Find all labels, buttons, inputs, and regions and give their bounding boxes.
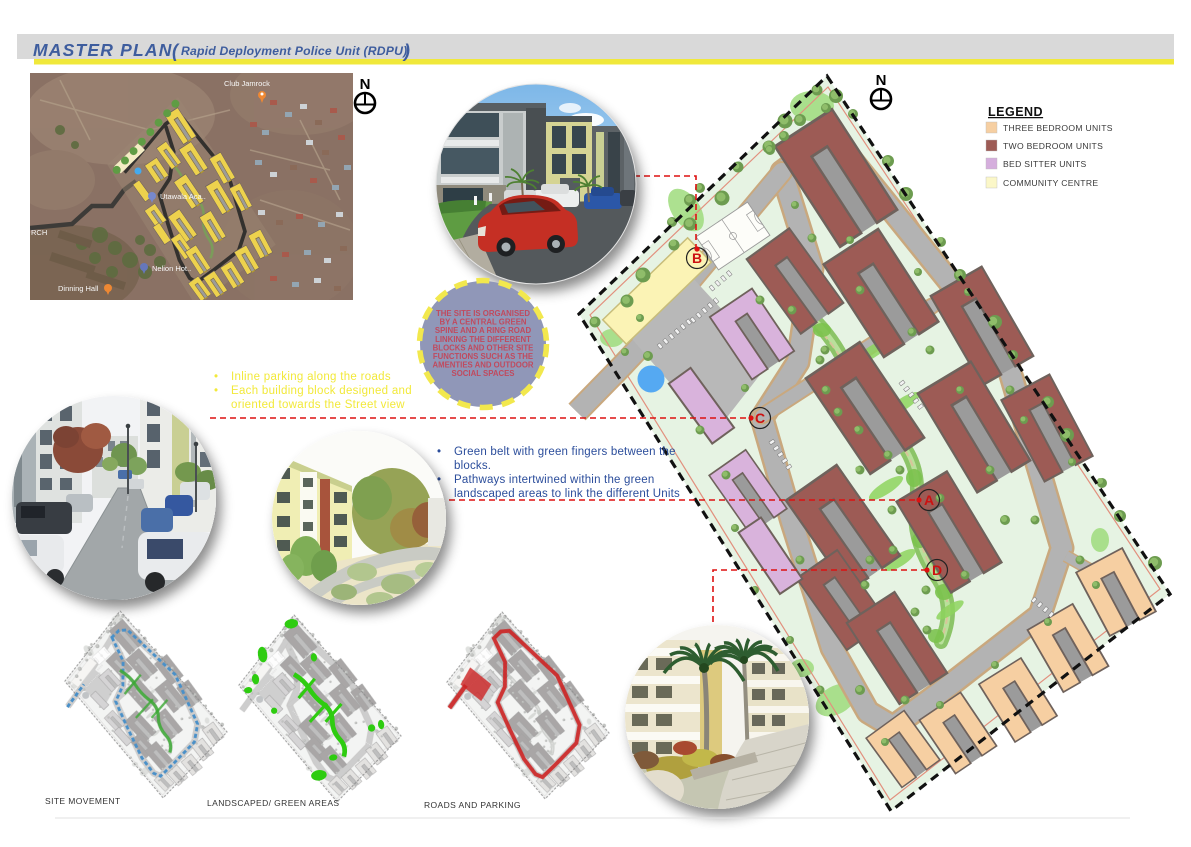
svg-text:Pathways intertwined within th: Pathways intertwined within the green bbox=[454, 474, 654, 486]
svg-text:COMMUNITY CENTRE: COMMUNITY CENTRE bbox=[1003, 178, 1098, 188]
svg-text:TWO BEDROOM UNITS: TWO BEDROOM UNITS bbox=[1003, 141, 1103, 151]
svg-text:Nelion Hot..: Nelion Hot.. bbox=[152, 264, 191, 273]
svg-text:N: N bbox=[876, 72, 887, 89]
svg-text:C: C bbox=[755, 410, 765, 426]
svg-text:Rapid Deployment Police Unit (: Rapid Deployment Police Unit (RDPU) bbox=[181, 44, 407, 58]
svg-text:MASTER PLAN: MASTER PLAN bbox=[33, 40, 173, 60]
svg-text:•: • bbox=[214, 371, 218, 383]
svg-text:Utawala Aca..: Utawala Aca.. bbox=[160, 192, 206, 201]
svg-text:Inline parking along the roads: Inline parking along the roads bbox=[231, 371, 391, 383]
svg-text:Club Jamrock: Club Jamrock bbox=[224, 79, 270, 88]
svg-text:BED SITTER UNITS: BED SITTER UNITS bbox=[1003, 159, 1087, 169]
svg-text:THREE BEDROOM UNITS: THREE BEDROOM UNITS bbox=[1003, 123, 1113, 133]
svg-text:•: • bbox=[437, 446, 441, 458]
svg-text:Green belt with green fingers: Green belt with green fingers between th… bbox=[454, 446, 676, 458]
svg-text:Dinning Hall: Dinning Hall bbox=[58, 284, 99, 293]
svg-text:RCH: RCH bbox=[31, 228, 47, 237]
svg-text:blocks.: blocks. bbox=[454, 460, 491, 472]
svg-text:•: • bbox=[214, 385, 218, 397]
svg-text:oriented towards the Street vi: oriented towards the Street view bbox=[231, 399, 405, 411]
svg-text:ROADS AND PARKING: ROADS AND PARKING bbox=[424, 800, 521, 810]
svg-text:landscaped areas to link the d: landscaped areas to link the different U… bbox=[454, 488, 680, 500]
svg-text:Each building block designed a: Each building block designed and bbox=[231, 385, 412, 397]
svg-text:SITE MOVEMENT: SITE MOVEMENT bbox=[45, 796, 121, 806]
svg-text:LEGEND: LEGEND bbox=[988, 105, 1043, 119]
svg-text:A: A bbox=[924, 492, 934, 508]
svg-text:LANDSCAPED/ GREEN AREAS: LANDSCAPED/ GREEN AREAS bbox=[207, 798, 340, 808]
svg-text:SOCIAL SPACES: SOCIAL SPACES bbox=[452, 369, 515, 378]
svg-text:B: B bbox=[692, 250, 702, 266]
svg-text:): ) bbox=[402, 41, 410, 61]
svg-text:N: N bbox=[360, 76, 371, 93]
svg-text:D: D bbox=[932, 562, 942, 578]
